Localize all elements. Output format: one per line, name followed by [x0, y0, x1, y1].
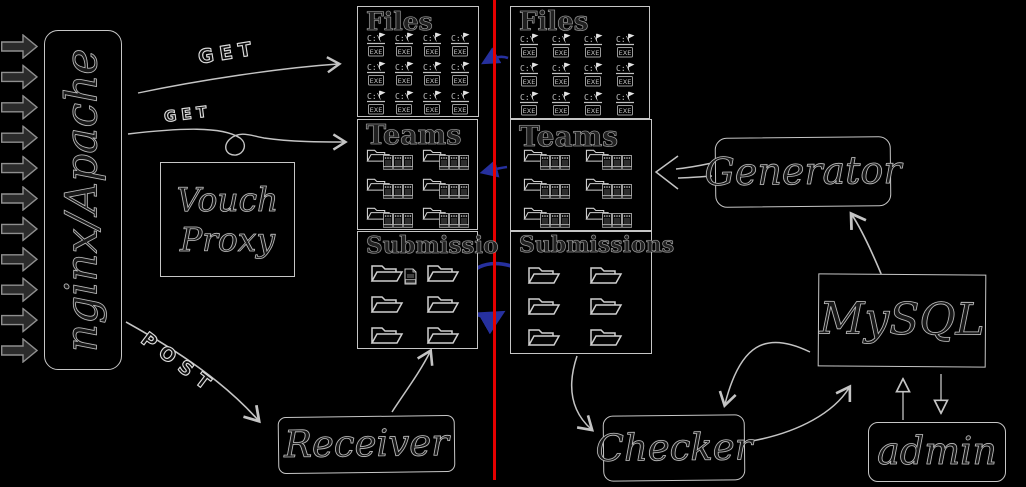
request-arrow-icon — [2, 96, 37, 119]
dos-exe-file-icon — [616, 63, 635, 87]
team-folder-icon — [423, 208, 468, 227]
team-folder-icon — [423, 150, 468, 169]
open-folder-icon — [372, 328, 402, 343]
open-folder-icon — [529, 299, 559, 314]
receiver-label: Receiver — [284, 421, 449, 467]
team-folder-icon — [367, 179, 412, 198]
dos-exe-file-icon — [451, 62, 470, 86]
team-folder-icon — [586, 179, 631, 198]
request-arrow-icon — [2, 187, 37, 210]
right-teams-box: Teams — [510, 119, 652, 231]
team-folder-icon — [367, 150, 412, 169]
receiver-node: Receiver — [278, 415, 456, 474]
vouch-line1: Vouch — [177, 180, 279, 219]
mysql-label: MySQL — [819, 294, 985, 348]
dos-exe-file-icon — [584, 34, 603, 58]
open-folder-icon — [591, 268, 621, 283]
right-files-grid — [515, 32, 647, 118]
open-folder-icon — [428, 328, 458, 343]
dos-exe-file-icon — [367, 33, 386, 57]
dos-exe-file-icon — [552, 92, 571, 116]
nginx-apache-node: nginx/Apache — [44, 30, 122, 370]
admin-label: admin — [877, 429, 997, 475]
left-submissions-title: Submissio — [366, 232, 498, 259]
open-folder-icon — [428, 266, 458, 281]
sync-files-arrow — [485, 57, 508, 62]
open-folder-icon — [529, 330, 559, 345]
mysql-to-checker-arrow — [725, 342, 810, 404]
mysql-node: MySQL — [818, 273, 987, 367]
open-folder-icon — [591, 299, 621, 314]
dos-exe-file-icon — [395, 33, 414, 57]
request-arrow-icon — [2, 339, 37, 362]
vouch-proxy-label: Vouch Proxy — [177, 180, 279, 259]
dos-exe-file-icon — [520, 34, 539, 58]
dos-exe-file-icon — [616, 34, 635, 58]
team-folder-icon — [367, 208, 412, 227]
vouch-line2: Proxy — [180, 220, 275, 259]
dos-exe-file-icon — [584, 92, 603, 116]
left-submissions-grid — [360, 258, 477, 348]
dos-exe-file-icon — [367, 91, 386, 115]
checker-node: Checker — [603, 414, 746, 481]
team-folder-icon — [586, 208, 631, 227]
dos-exe-file-icon — [423, 62, 442, 86]
team-folder-icon — [524, 150, 569, 169]
text-file-icon — [405, 269, 416, 284]
checker-to-mysql-arrow — [752, 388, 849, 441]
left-teams-box: Teams — [357, 119, 478, 230]
dos-exe-file-icon — [552, 63, 571, 87]
request-arrow-icon — [2, 278, 37, 301]
get-teams-arrow — [128, 129, 344, 155]
right-teams-grid — [515, 146, 649, 230]
nginx-apache-label: nginx/Apache — [57, 48, 110, 352]
request-arrow-icon — [2, 35, 37, 58]
dos-exe-file-icon — [423, 33, 442, 57]
dos-exe-file-icon — [423, 91, 442, 115]
incoming-requests-arrows — [2, 35, 37, 362]
request-arrow-icon — [2, 309, 37, 332]
request-arrow-icon — [2, 157, 37, 180]
generator-node: Generator — [715, 136, 892, 208]
request-arrow-icon — [2, 65, 37, 88]
dos-exe-file-icon — [451, 33, 470, 57]
dos-exe-file-icon — [520, 63, 539, 87]
right-submissions-title: Submissions — [519, 232, 674, 258]
request-arrow-icon — [2, 126, 37, 149]
dos-exe-file-icon — [367, 62, 386, 86]
architecture-diagram: C:\ EXE — [0, 0, 1026, 487]
open-folder-icon — [591, 330, 621, 345]
dos-exe-file-icon — [395, 62, 414, 86]
open-folder-icon — [529, 268, 559, 283]
checker-label: Checker — [595, 425, 752, 471]
vouch-proxy-node: Vouch Proxy — [160, 162, 295, 277]
team-folder-icon — [524, 179, 569, 198]
team-folder-icon — [586, 150, 631, 169]
get-files-arrow — [138, 64, 338, 93]
open-folder-icon — [428, 297, 458, 312]
right-files-box: Files — [510, 6, 650, 119]
left-submissions-box: Submissio — [357, 231, 478, 349]
submissions-to-checker-arrow — [572, 356, 591, 429]
dos-exe-file-icon — [520, 92, 539, 116]
dos-exe-file-icon — [451, 91, 470, 115]
team-folder-icon — [524, 208, 569, 227]
generator-label: Generator — [704, 148, 901, 196]
open-folder-icon — [372, 297, 402, 312]
open-folder-icon — [372, 266, 402, 281]
dos-exe-file-icon — [395, 91, 414, 115]
left-files-grid — [360, 31, 478, 117]
left-teams-grid — [360, 146, 477, 230]
dos-exe-file-icon — [616, 92, 635, 116]
right-submissions-grid — [515, 260, 649, 353]
dos-exe-file-icon — [552, 34, 571, 58]
request-arrow-icon — [2, 217, 37, 240]
admin-node: admin — [868, 422, 1006, 482]
request-arrow-icon — [2, 248, 37, 271]
dos-exe-file-icon — [584, 63, 603, 87]
left-files-box: Files — [357, 6, 479, 117]
team-folder-icon — [423, 179, 468, 198]
mysql-to-generator-arrow — [852, 215, 882, 276]
right-submissions-box: Submissions — [510, 231, 652, 354]
receiver-to-submissions-arrow — [392, 352, 430, 412]
